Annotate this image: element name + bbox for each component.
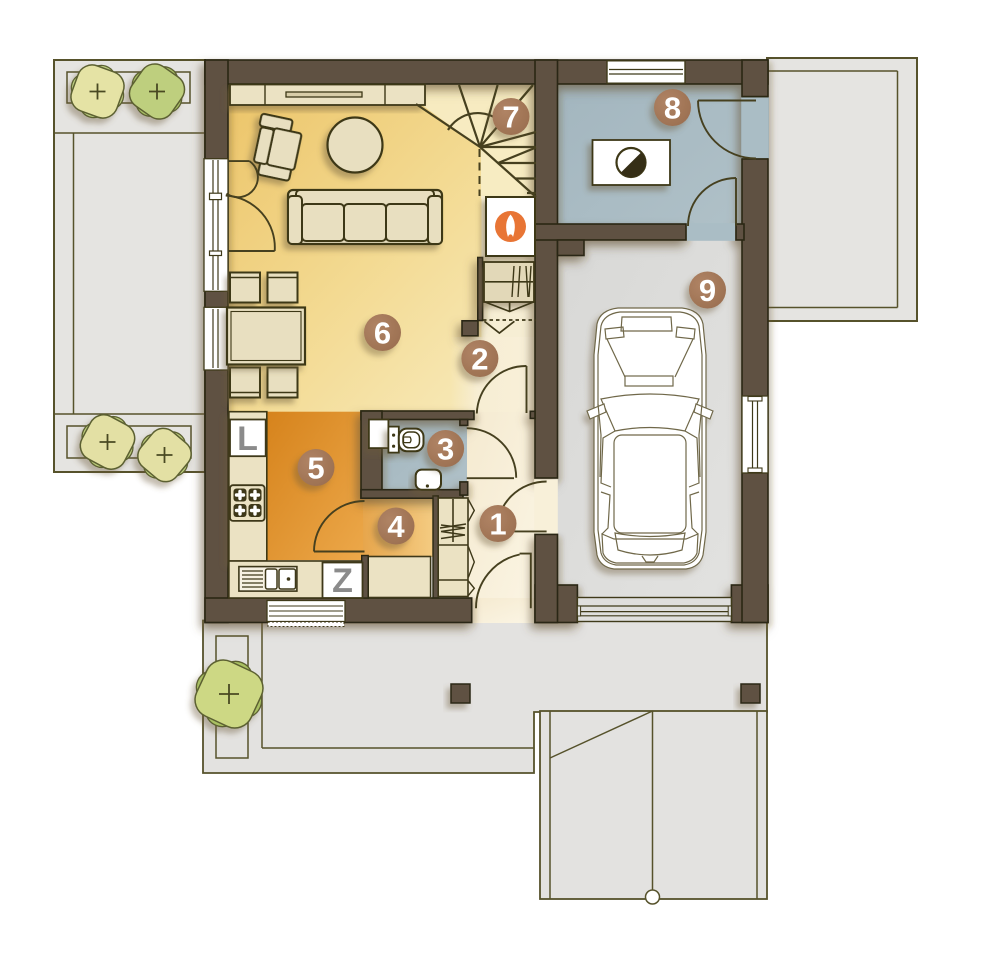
svg-text:L: L (237, 420, 258, 458)
svg-text:2: 2 (471, 342, 488, 377)
svg-text:5: 5 (307, 451, 324, 486)
svg-text:6: 6 (374, 316, 391, 351)
svg-text:7: 7 (502, 100, 519, 135)
svg-text:4: 4 (387, 509, 405, 544)
svg-text:3: 3 (437, 432, 454, 467)
svg-text:9: 9 (699, 273, 716, 308)
svg-text:Z: Z (332, 562, 353, 600)
svg-text:8: 8 (664, 91, 681, 126)
svg-text:1: 1 (489, 507, 506, 542)
